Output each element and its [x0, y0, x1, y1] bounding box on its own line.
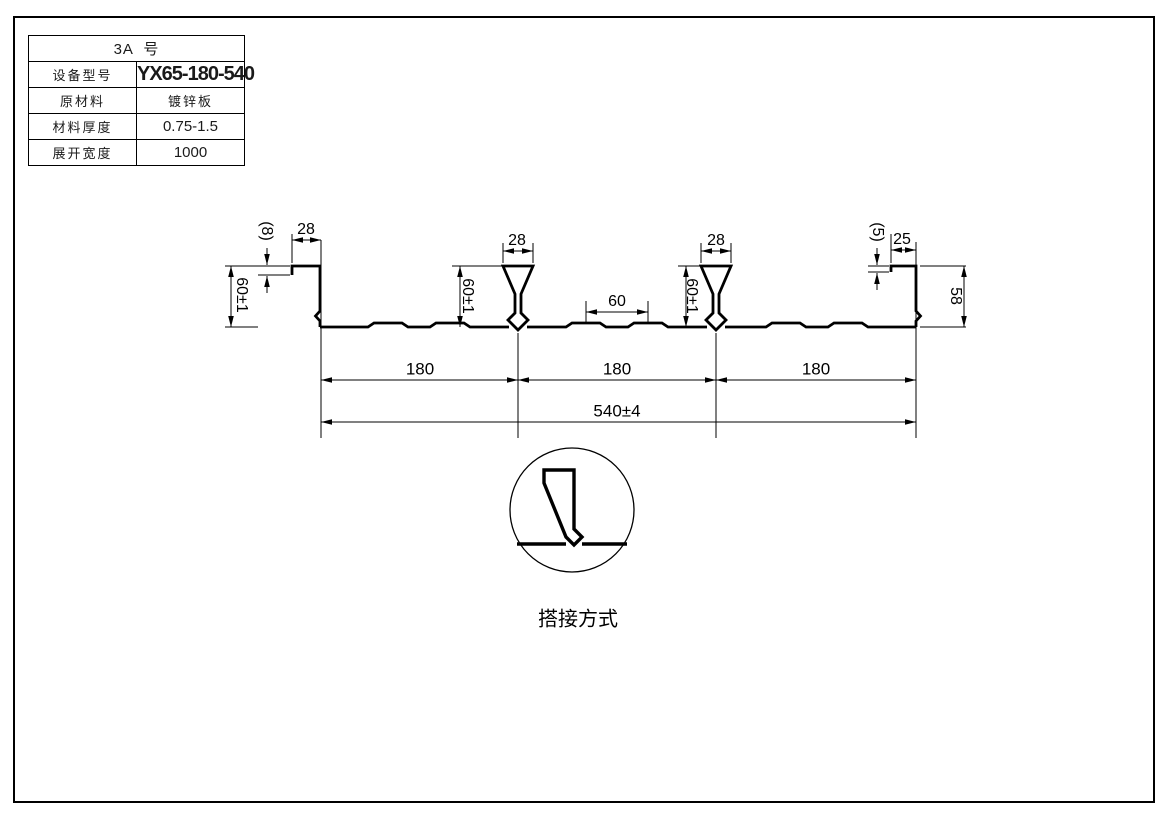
section-profile	[292, 266, 921, 330]
profile-drawing: 28 (8) 60±1 28 60±1 60	[0, 0, 1169, 827]
dim-right-height: 58	[947, 287, 964, 305]
base-span2	[527, 323, 707, 327]
drawing-sheet: 3A 号 设备型号 YX65-180-540 原材料 镀锌板 材料厚度 0.75…	[0, 0, 1169, 827]
dim-right-lip: (5)	[869, 222, 886, 242]
dim-pitch2: 180	[603, 359, 631, 378]
rib2-profile	[701, 266, 731, 330]
dim-rib2-width: 28	[707, 232, 725, 249]
lap-detail-label: 搭接方式	[538, 607, 618, 630]
dim-rib1-width: 28	[508, 232, 526, 249]
dim-rib2-height: 60±1	[683, 278, 700, 314]
base-span3	[725, 323, 916, 327]
dim-rib1-height: 60±1	[459, 278, 476, 314]
rib1-profile	[503, 266, 533, 330]
dim-mid-flat: 60	[608, 293, 626, 310]
dim-left-lip: (8)	[258, 221, 275, 241]
detail-circle	[510, 448, 634, 572]
left-edge-profile	[292, 266, 320, 327]
base-span1	[320, 323, 509, 327]
lap-detail: 搭接方式	[510, 448, 634, 630]
dimensions: 28 (8) 60±1 28 60±1 60	[225, 221, 966, 438]
detail-overlap-profile	[544, 470, 582, 545]
dim-right-flange-width: 25	[893, 231, 911, 248]
dim-pitch1: 180	[406, 359, 434, 378]
dim-pitch3: 180	[802, 359, 830, 378]
dim-left-flange-width: 28	[297, 221, 315, 238]
dim-overall-width: 540±4	[593, 401, 640, 420]
dim-left-height: 60±1	[233, 277, 250, 313]
